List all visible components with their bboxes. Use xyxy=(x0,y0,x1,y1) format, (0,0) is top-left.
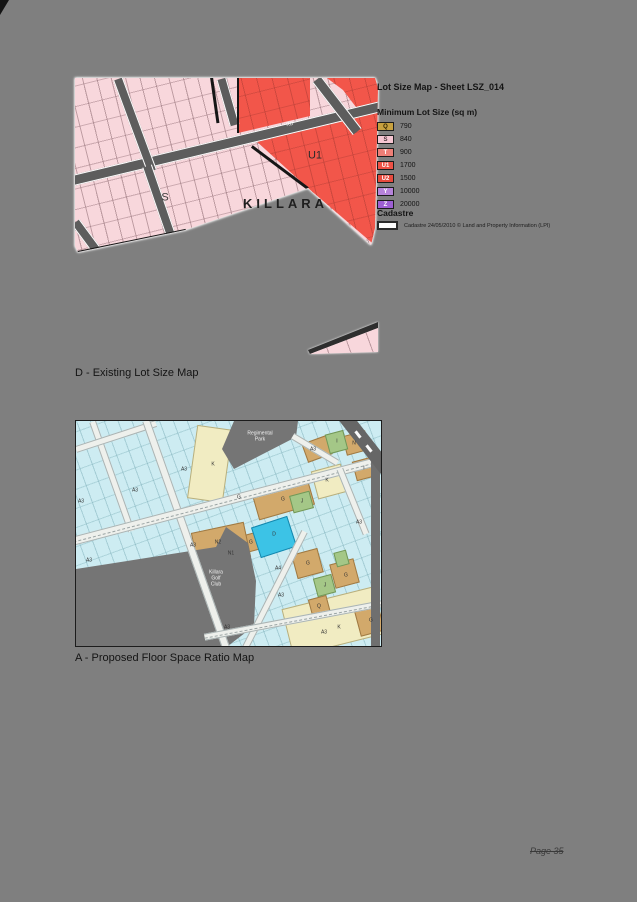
legend-value-y: 10000 xyxy=(400,188,419,195)
zone-label-rd: RD xyxy=(286,122,294,128)
zone-label-a3: A3 xyxy=(356,521,362,526)
legend-swatch-t: T xyxy=(377,148,394,157)
legend-value-z: 20000 xyxy=(400,201,419,208)
zone-label-a3: A3 xyxy=(278,594,284,599)
legend-value-q: 790 xyxy=(400,123,412,130)
zone-label-j: J xyxy=(301,500,304,505)
legend-swatch-u1: U1 xyxy=(377,161,394,170)
page-number: Page 35 xyxy=(530,846,564,856)
legend-row-s: S840 xyxy=(377,133,419,146)
lsz-labels: SU1RD xyxy=(75,78,378,278)
zone-label-n1: N1 xyxy=(228,552,234,557)
killara-place-label: KILLARA xyxy=(243,196,328,211)
zone-label-g: G xyxy=(306,562,310,567)
legend-value-t: 900 xyxy=(400,149,412,156)
cadastre-swatch xyxy=(377,221,398,230)
zone-label-g: G xyxy=(281,498,285,503)
legend-value-u2: 1500 xyxy=(400,175,416,182)
zone-label-k: K xyxy=(325,479,328,484)
lot-size-map: SU1RD xyxy=(75,78,378,278)
caption-proposed-fsr-map: A - Proposed Floor Space Ratio Map xyxy=(75,652,254,664)
zone-label-d: D xyxy=(272,533,276,538)
page-corner-artifact xyxy=(0,0,9,15)
zone-label-i: I xyxy=(336,440,337,445)
zone-label-a3: A3 xyxy=(310,448,316,453)
legend-rows: Q790S840T900U11700U21500Y10000Z20000 xyxy=(377,120,419,211)
legend-value-u1: 1700 xyxy=(400,162,416,169)
zone-label-n: N xyxy=(352,442,356,447)
fsr-map: RegimentalPark KillaraGolfClub A3A3A3A3A… xyxy=(75,420,382,647)
zone-label-n2: N2 xyxy=(215,541,221,546)
zone-label-u1: U1 xyxy=(308,151,322,162)
zone-label-q: Q xyxy=(317,605,321,610)
lot-size-map-title: Lot Size Map - Sheet LSZ_014 xyxy=(377,82,504,92)
zone-label-a4: A4 xyxy=(275,567,281,572)
zone-label-a3: A3 xyxy=(321,631,327,636)
zone-label-i: I xyxy=(363,467,364,472)
legend-swatch-y: Y xyxy=(377,187,394,196)
zone-label-s: S xyxy=(161,193,168,204)
legend-row-u1: U11700 xyxy=(377,159,419,172)
legend-row-q: Q790 xyxy=(377,120,419,133)
zone-label-k: K xyxy=(211,463,214,468)
zone-label-a3: A3 xyxy=(224,626,230,631)
legend-swatch-q: Q xyxy=(377,122,394,131)
caption-existing-lot-size-map: D - Existing Lot Size Map xyxy=(75,367,199,379)
zone-label-a3: A3 xyxy=(181,468,187,473)
legend-row-u2: U21500 xyxy=(377,172,419,185)
zone-label-g: G xyxy=(369,619,373,624)
legend-value-s: 840 xyxy=(400,136,412,143)
legend-heading: Minimum Lot Size (sq m) xyxy=(377,107,477,117)
fsr-labels: A3A3A3A3A3A3A3A3A3A3A4KKKGGGGGGNN1N2IIJJ… xyxy=(76,421,381,646)
zone-label-a3: A3 xyxy=(132,489,138,494)
cadastre-row: Cadastre 24/05/2010 © Land and Property … xyxy=(377,221,550,230)
zone-label-g: G xyxy=(344,574,348,579)
legend-swatch-s: S xyxy=(377,135,394,144)
zone-label-k: K xyxy=(337,626,340,631)
cadastre-note: Cadastre 24/05/2010 © Land and Property … xyxy=(404,223,550,229)
zone-label-a3: A3 xyxy=(190,544,196,549)
zone-label-a3: A3 xyxy=(86,559,92,564)
zone-label-g: G xyxy=(249,541,253,546)
legend-swatch-u2: U2 xyxy=(377,174,394,183)
legend-row-y: Y10000 xyxy=(377,185,419,198)
cadastre-heading: Cadastre xyxy=(377,208,413,218)
zone-label-g: G xyxy=(237,496,241,501)
lot-size-map-canvas: SU1RD xyxy=(75,78,378,278)
map-fragment-wedge xyxy=(308,318,378,356)
zone-label-a3: A3 xyxy=(78,500,84,505)
legend-row-t: T900 xyxy=(377,146,419,159)
zone-label-j: J xyxy=(324,584,327,589)
